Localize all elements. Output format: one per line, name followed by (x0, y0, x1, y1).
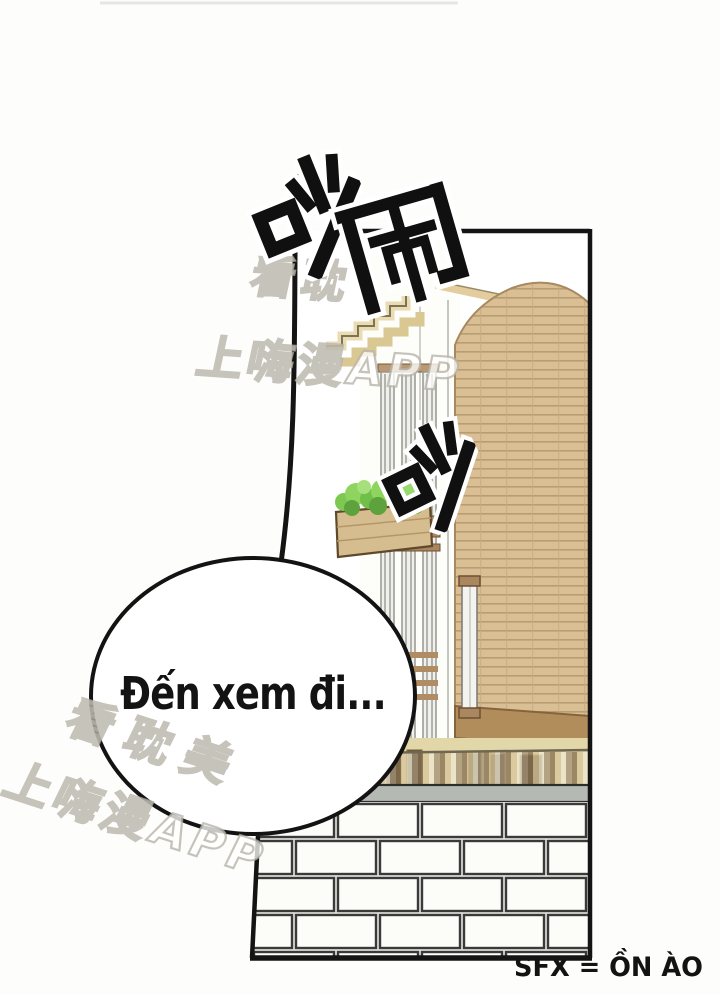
sfx-caption: SFX = ỒN ÀO (514, 952, 703, 983)
panel-artwork (0, 0, 720, 995)
speech-bubble: Đến xem đi... (89, 556, 417, 836)
speech-bubble-text: Đến xem đi... (120, 667, 386, 726)
comic-page: { "comic": { "speech_bubble": { "text": … (0, 0, 720, 995)
